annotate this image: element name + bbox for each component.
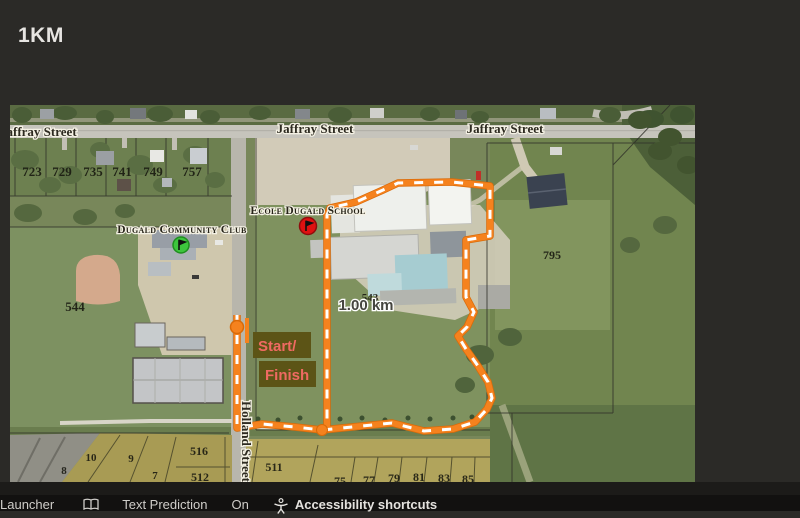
page-title: 1KM (18, 24, 64, 48)
baseball-diamond (76, 255, 120, 305)
finish-label: Finish (265, 367, 309, 384)
accessibility-icon (273, 498, 289, 514)
lot-79: 79 (388, 471, 400, 482)
lot-85: 85 (462, 472, 474, 482)
lot-741: 741 (112, 164, 132, 179)
open-book-icon (82, 498, 100, 512)
lot-729: 729 (52, 164, 72, 179)
text-prediction-state[interactable]: On (231, 498, 248, 512)
lot-512: 512 (191, 470, 209, 482)
start-finish-marker (231, 321, 244, 334)
screen: { "header": { "title": "1KM" }, "map": {… (0, 0, 800, 511)
lot-10: 10 (86, 452, 98, 464)
start-label: Start/ (258, 338, 297, 355)
footer-area: Launcher Text Prediction On A (0, 482, 800, 511)
lot-81: 81 (413, 470, 425, 482)
lot-795: 795 (543, 248, 561, 262)
route-junction-marker (317, 425, 328, 436)
house-795 (526, 173, 567, 209)
text-prediction-toggle[interactable]: Text Prediction (122, 498, 207, 512)
lot-735: 735 (83, 164, 103, 179)
text-prediction-label: Text Prediction (122, 498, 207, 512)
launcher-button[interactable]: Launcher (0, 498, 54, 512)
taskbar: Launcher Text Prediction On A (0, 495, 800, 511)
lot-83: 83 (438, 471, 450, 482)
jaffray-street-label-left: Jaffray Street (10, 124, 77, 139)
distance-label: 1.00 km (338, 297, 393, 314)
lot-757: 757 (182, 164, 202, 179)
dictionary-button[interactable] (82, 498, 100, 512)
jaffray-street-label-right: Jaffray Street (467, 121, 544, 136)
jaffray-street-label-center: Jaffray Street (277, 121, 354, 136)
lot-7: 7 (152, 470, 158, 482)
lot-77: 77 (363, 473, 375, 482)
lot-544: 544 (65, 299, 85, 314)
school-marker[interactable] (300, 218, 317, 235)
launcher-label: Launcher (0, 498, 54, 512)
lot-516: 516 (190, 444, 208, 458)
school-label: Ecole Dugald School (250, 205, 365, 217)
community-club-label: Dugald Community Club (117, 224, 247, 236)
accessibility-shortcuts-label: Accessibility shortcuts (295, 498, 437, 512)
accessibility-shortcuts-button[interactable]: Accessibility shortcuts (273, 498, 437, 514)
text-prediction-state-label: On (231, 498, 248, 512)
community-club-marker[interactable] (173, 237, 189, 253)
playground-pad (478, 285, 510, 309)
lot-75: 75 (334, 474, 346, 482)
lot-9: 9 (128, 453, 134, 465)
map-image[interactable]: Jaffray Street Jaffray Street Jaffray St… (10, 105, 695, 482)
lot-511: 511 (265, 460, 282, 474)
lot-723: 723 (22, 164, 42, 179)
lot-8: 8 (61, 465, 67, 477)
lot-749: 749 (143, 164, 163, 179)
holland-street-label: Holland Street (239, 401, 254, 482)
